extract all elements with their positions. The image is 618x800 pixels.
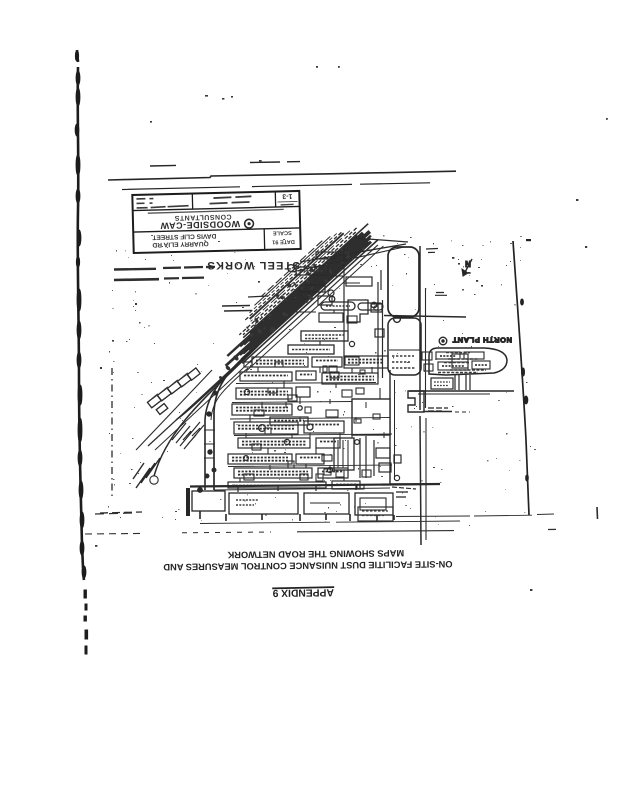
svg-text:MAPS SHOWING THE ROAD NETWORK: MAPS SHOWING THE ROAD NETWORK xyxy=(227,548,404,560)
svg-text:STEEL WORKS: STEEL WORKS xyxy=(206,259,300,271)
svg-text:N: N xyxy=(465,259,471,268)
svg-text:1-3: 1-3 xyxy=(282,192,292,199)
svg-text:QUARRY ELIA RD: QUARRY ELIA RD xyxy=(152,240,209,248)
svg-text:WOODSIDE-CAW: WOODSIDE-CAW xyxy=(160,219,240,231)
svg-text:NORTH PLANT: NORTH PLANT xyxy=(452,336,512,345)
svg-text:SCALE: SCALE xyxy=(272,229,291,235)
